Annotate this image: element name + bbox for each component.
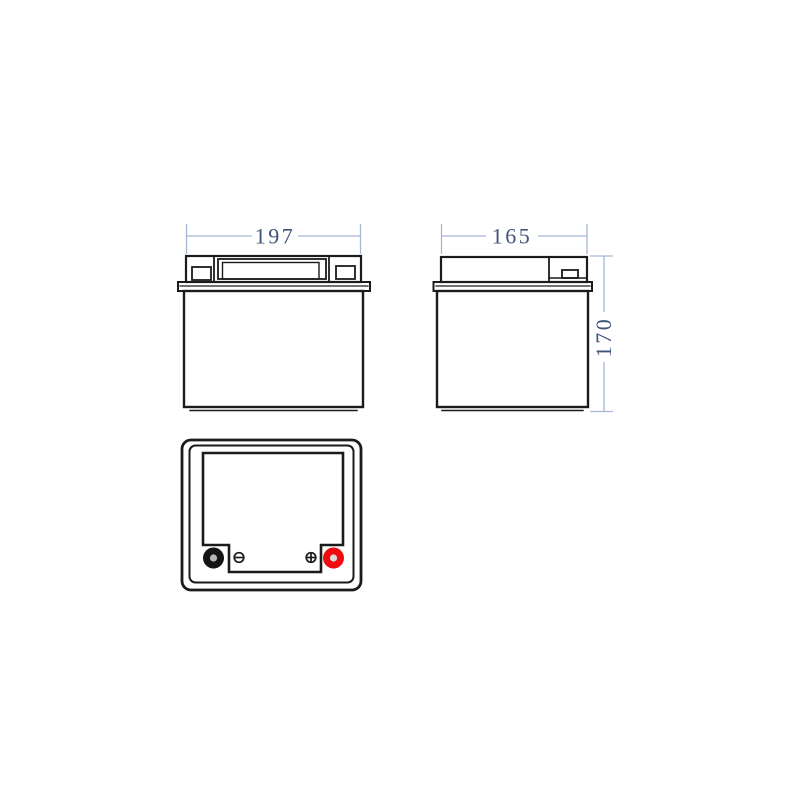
positive-polarity-icon	[306, 553, 316, 563]
front-left-terminal-cap	[192, 267, 211, 280]
side-terminal-cap	[562, 270, 578, 278]
front-lid-center-recess-inner	[223, 263, 320, 280]
side-body	[437, 291, 588, 407]
positive-terminal-core	[330, 554, 337, 561]
front-body	[184, 291, 363, 407]
battery-dimension-drawing: 197 165 170	[0, 0, 800, 800]
drawing-page: 197 165 170	[0, 0, 800, 800]
side-height-dimension-label: 170	[591, 317, 616, 358]
front-right-terminal-cap	[336, 266, 355, 279]
front-width-dimension-label: 197	[255, 224, 296, 249]
side-depth-dimension-label: 165	[492, 224, 533, 249]
front-view	[178, 256, 370, 411]
side-view	[434, 257, 593, 411]
top-view-lid-plate	[203, 453, 343, 572]
negative-terminal-core	[210, 554, 217, 561]
